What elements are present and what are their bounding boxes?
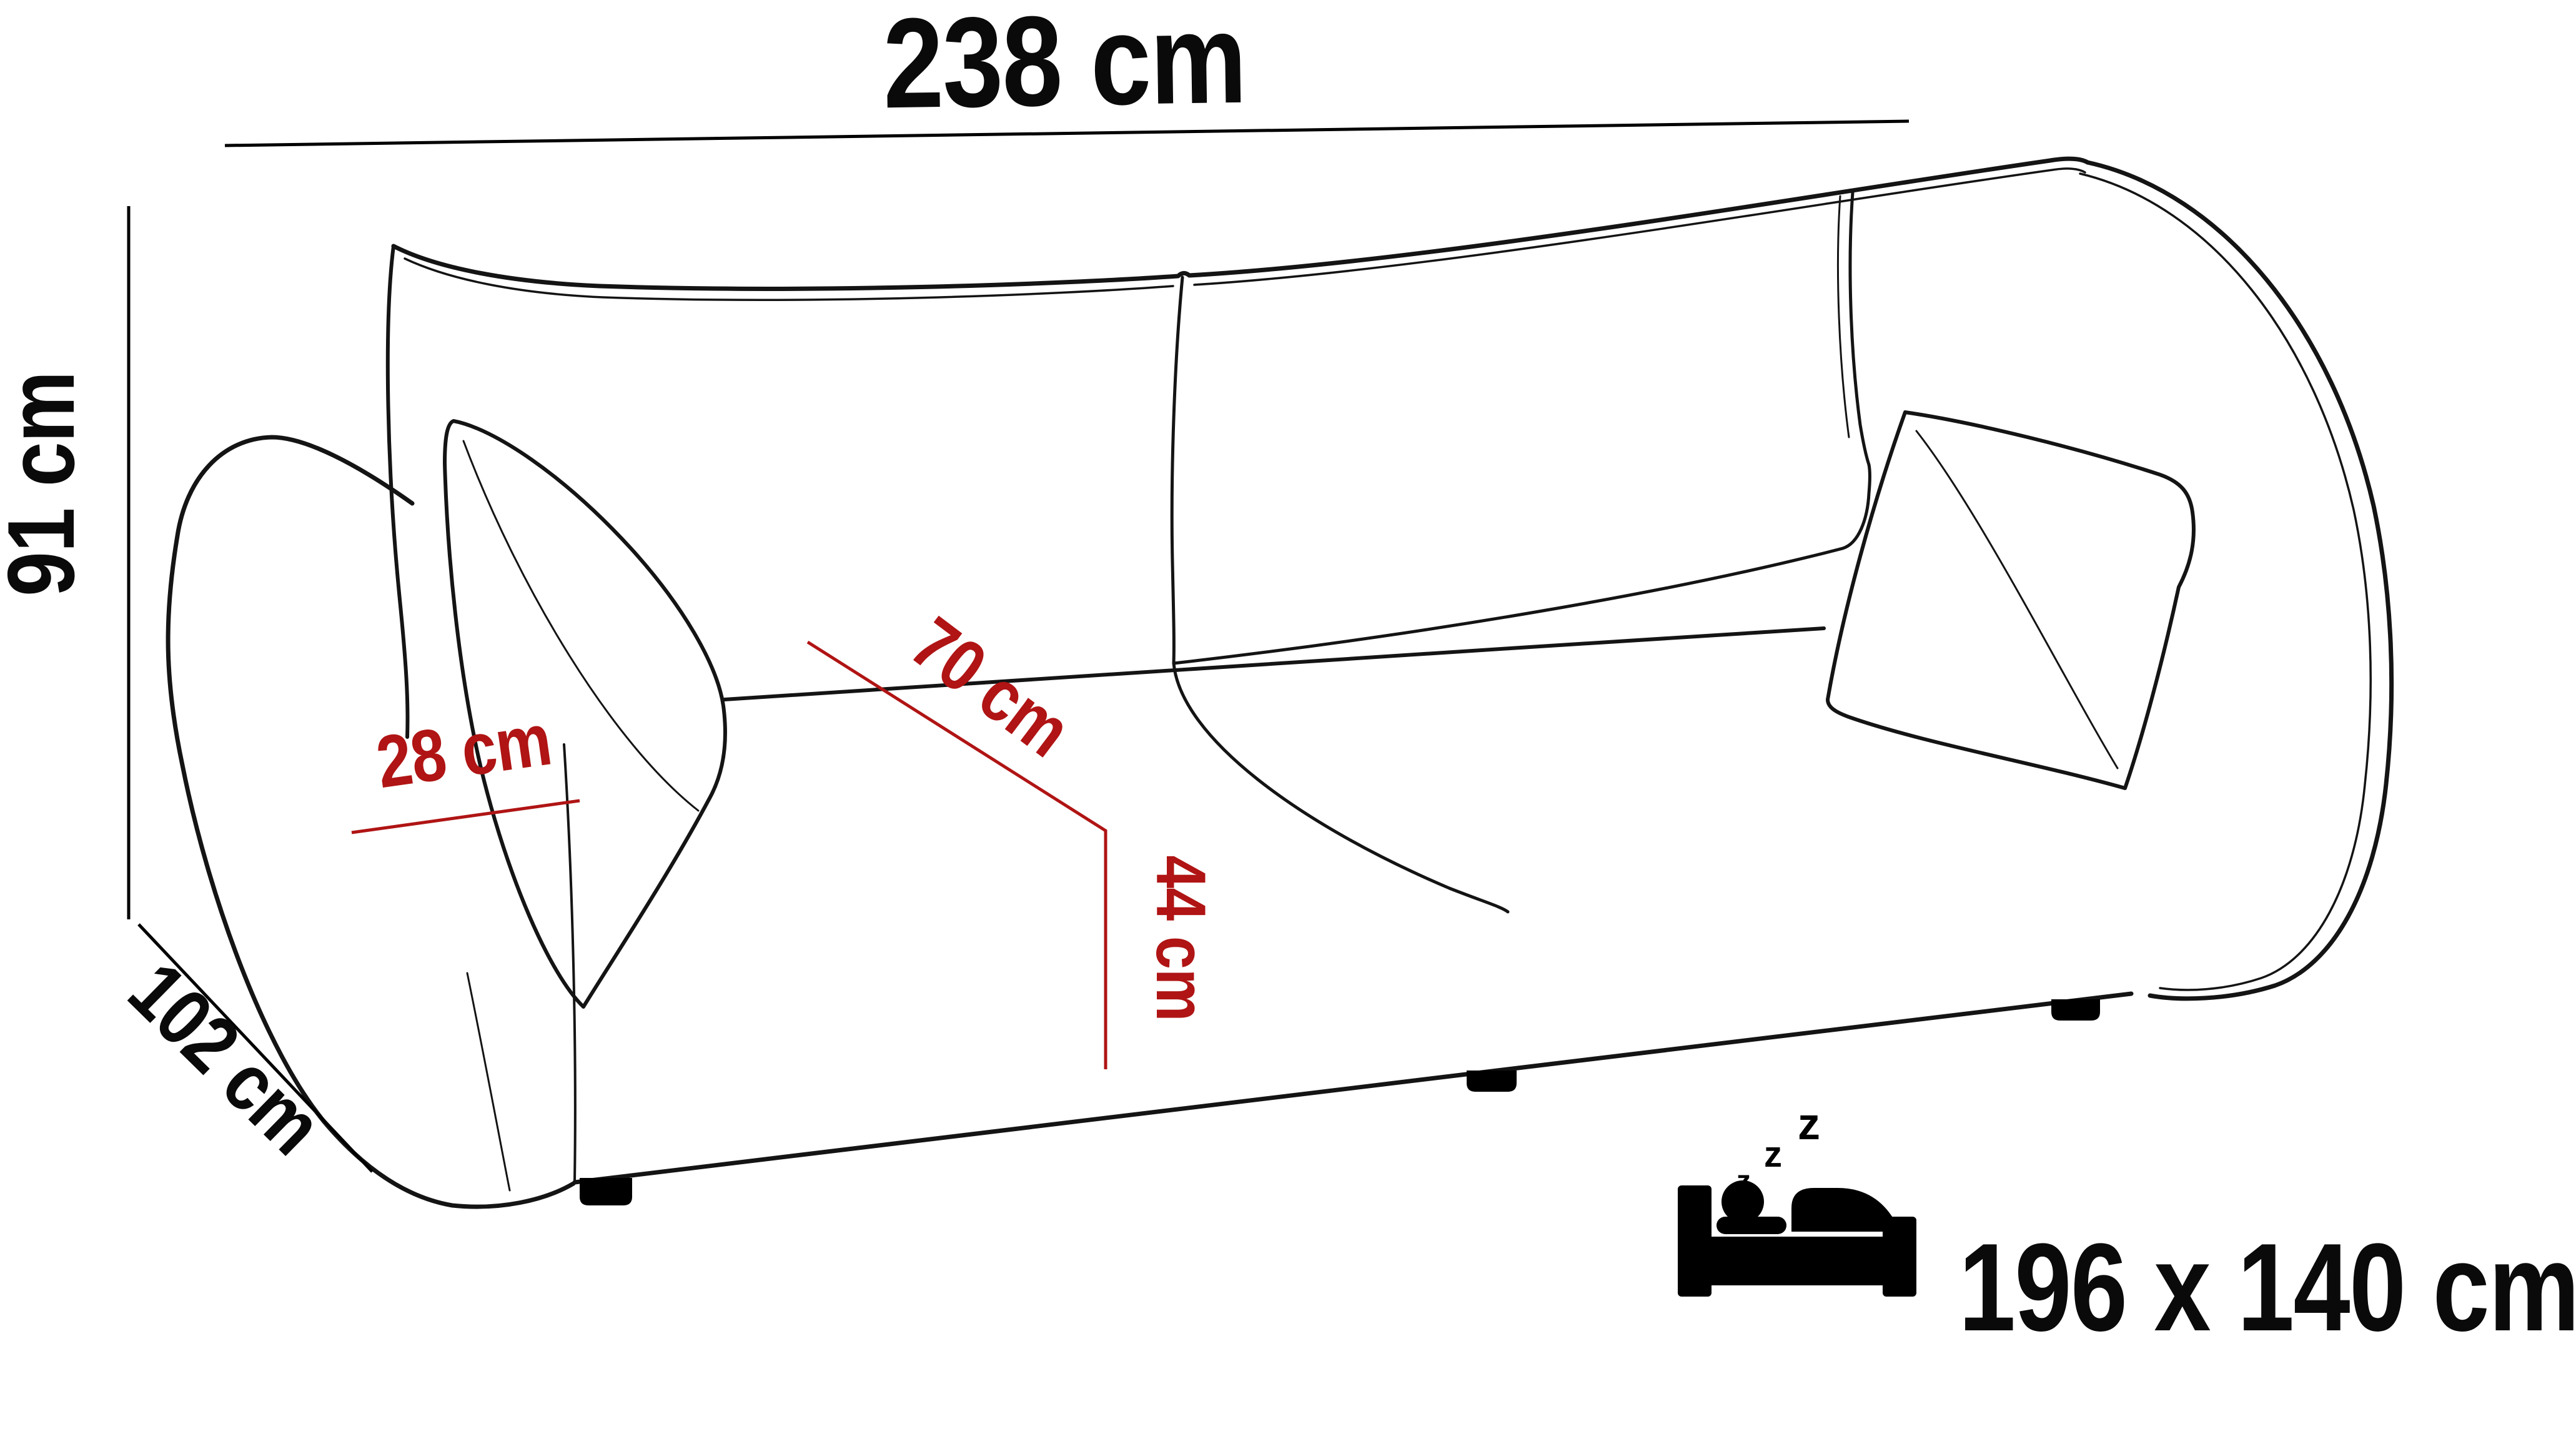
width-dimension: 238 cm <box>225 0 1909 146</box>
sleeping-area-badge: z z z 196 x 140 cm <box>1678 1099 2576 1357</box>
sofa-right-back-cushion-edge <box>1850 192 1869 465</box>
sofa-leg-front-left <box>580 1178 632 1205</box>
sleep-z-medium: z <box>1764 1134 1782 1175</box>
sofa-bottom-edge <box>575 994 2131 1182</box>
armrest-width-dimension: 28 cm <box>352 698 580 833</box>
sleeping-area-size-label: 196 x 140 cm <box>1959 1217 2576 1357</box>
seat-height-dimension: 44 cm <box>1141 855 1219 1021</box>
bed-base <box>1678 1237 1916 1285</box>
seat-height-label: 44 cm <box>1141 855 1219 1021</box>
sofa-seat-front-edge <box>725 628 1824 700</box>
sofa-leg-middle <box>1467 1071 1517 1092</box>
person-body <box>1717 1217 1786 1234</box>
sofa-dimension-diagram: 238 cm 91 cm 102 cm 28 cm 70 cm <box>0 0 2576 1439</box>
seat-depth-label: 70 cm <box>896 602 1085 773</box>
height-dimension-label: 91 cm <box>0 372 94 596</box>
sofa-right-pillow-crease <box>1916 431 2118 768</box>
sofa-illustration <box>168 159 2392 1207</box>
sofa-right-back-cushion-inner-edge <box>1838 196 1849 437</box>
sleeping-person-bed-icon: z z z <box>1678 1099 1916 1297</box>
sofa-dimension-diagram-page: 238 cm 91 cm 102 cm 28 cm 70 cm <box>0 0 2576 1439</box>
depth-dimension-label: 102 cm <box>112 945 339 1171</box>
sofa-left-arm-inner-crease <box>467 973 510 1190</box>
sofa-back-top-piping-right <box>1194 169 2085 285</box>
seat-depth-dimension: 70 cm <box>808 602 1106 1069</box>
sleep-z-small: z <box>1736 1164 1751 1197</box>
sofa-back-top-edge <box>394 159 2088 289</box>
armrest-width-label: 28 cm <box>372 698 556 804</box>
bed-blanket <box>1791 1188 1900 1232</box>
height-dimension: 91 cm <box>0 206 129 919</box>
sofa-right-pillow <box>1828 412 2194 788</box>
width-dimension-label: 238 cm <box>882 0 1247 135</box>
sofa-right-arm-inner-contour <box>2080 174 2370 990</box>
sofa-leg-right <box>2051 999 2100 1021</box>
sofa-cushion-seam <box>1172 277 1508 912</box>
armrest-width-line <box>352 801 580 833</box>
sleep-z-large: z <box>1798 1099 1820 1149</box>
sofa-left-arm-front-edge <box>564 744 575 1180</box>
